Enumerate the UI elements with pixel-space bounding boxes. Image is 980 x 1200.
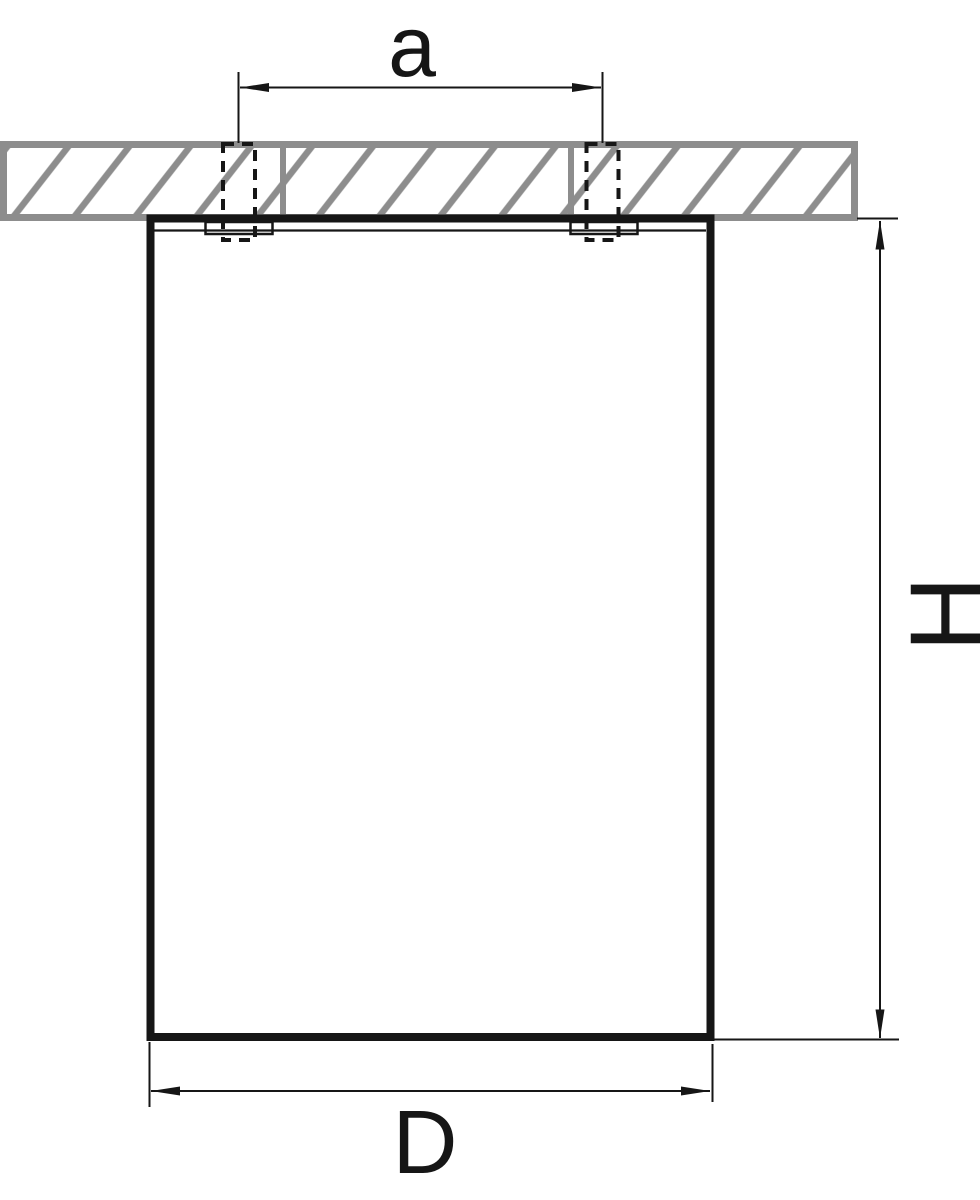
dimension-a-label: a [388,0,436,95]
dimension-h: H [713,219,980,1040]
fixture-body-outline [151,219,711,1038]
dimension-h-arrow-bottom [876,1010,885,1039]
dimension-h-label: H [889,576,980,652]
dimension-a-arrow-right [572,83,601,92]
dimension-h-arrow-top [876,221,885,250]
dimension-d: D [150,1042,713,1193]
dimension-a: a [239,0,603,143]
fixture-dimension-diagram: a H D [0,0,980,1200]
ceiling-slab-hatch [4,145,855,218]
dimension-a-arrow-left [240,83,269,92]
dimension-d-label: D [393,1093,458,1193]
dimension-d-arrow-left [151,1087,180,1096]
technical-drawing-canvas: a H D [0,0,980,1200]
dimension-d-arrow-right [681,1087,710,1096]
ceiling-slab [4,145,855,218]
fixture-body [151,219,711,1038]
